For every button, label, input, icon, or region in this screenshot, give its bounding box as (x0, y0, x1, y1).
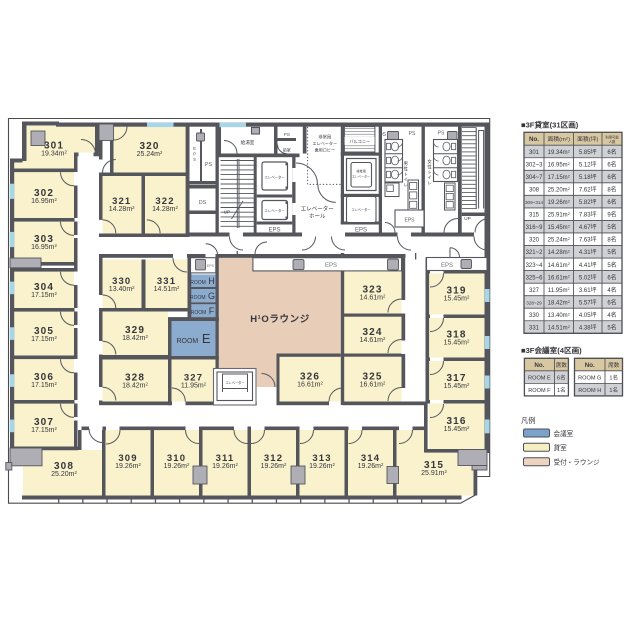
svg-text:25.20m2: 25.20m2 (548, 187, 570, 194)
svg-text:PS: PS (438, 131, 445, 137)
svg-text:7.83坪: 7.83坪 (579, 211, 597, 219)
svg-text:エレベーター: エレベーター (301, 205, 334, 213)
svg-text:5.18坪: 5.18坪 (579, 173, 597, 181)
svg-text:5.12坪: 5.12坪 (579, 160, 597, 168)
svg-text:16.61m2: 16.61m2 (297, 381, 323, 389)
svg-text:S: S (193, 157, 196, 162)
svg-text:4.05坪: 4.05坪 (579, 311, 597, 319)
svg-text:EPS: EPS (268, 228, 280, 234)
svg-text:14.61m2: 14.61m2 (548, 262, 570, 269)
svg-text:6名: 6名 (607, 273, 616, 281)
svg-text:16.95m2: 16.95m2 (548, 162, 570, 169)
svg-text:323~4: 323~4 (526, 263, 544, 269)
svg-text:EPS: EPS (325, 263, 337, 269)
svg-text:15.45m2: 15.45m2 (444, 425, 470, 433)
svg-text:308: 308 (529, 188, 540, 194)
svg-text:320: 320 (529, 238, 540, 244)
svg-text:3.61坪: 3.61坪 (579, 286, 597, 294)
svg-text:E: E (193, 146, 196, 151)
svg-text:エレベーター: エレベーター (264, 208, 285, 213)
svg-text:4名: 4名 (607, 311, 616, 319)
svg-text:ROOM F: ROOM F (528, 388, 551, 394)
svg-text:貸室: 貸室 (554, 443, 568, 452)
svg-text:1名: 1名 (609, 386, 618, 394)
svg-text:15.45m2: 15.45m2 (444, 339, 470, 347)
svg-text:非常用: 非常用 (318, 134, 331, 141)
svg-text:No.: No. (585, 362, 595, 369)
svg-text:UP: UP (224, 210, 230, 215)
svg-text:給湯室: 給湯室 (241, 139, 255, 146)
svg-text:ト: ト (404, 172, 408, 177)
svg-text:9名: 9名 (607, 211, 616, 219)
svg-text:PS: PS (409, 131, 416, 137)
svg-text:前室: 前室 (283, 147, 291, 153)
svg-text:ROOM G: ROOM G (578, 376, 601, 382)
svg-text:25.91m2: 25.91m2 (421, 469, 447, 477)
svg-text:321~2: 321~2 (526, 250, 544, 256)
svg-text:凡例: 凡例 (521, 416, 535, 425)
svg-text:エレベーター: エレベーター (313, 140, 338, 146)
svg-text:8名: 8名 (607, 236, 616, 244)
svg-text:EPS: EPS (207, 264, 215, 268)
svg-text:17.15m2: 17.15m2 (31, 335, 57, 343)
svg-text:5.85坪: 5.85坪 (579, 148, 597, 156)
svg-text:イ: イ (404, 177, 408, 182)
svg-text:14.28m2: 14.28m2 (152, 205, 178, 213)
svg-text:19.26m2: 19.26m2 (261, 462, 287, 470)
svg-text:16.95m2: 16.95m2 (31, 243, 57, 251)
svg-text:315: 315 (529, 213, 540, 219)
svg-text:ト: ト (427, 170, 431, 175)
svg-text:11.95m2: 11.95m2 (181, 382, 207, 390)
svg-text:19.26m2: 19.26m2 (164, 462, 190, 470)
svg-text:25.24m2: 25.24m2 (548, 237, 570, 244)
svg-text:19.26m2: 19.26m2 (115, 462, 141, 470)
svg-text:18.42m2: 18.42m2 (548, 300, 570, 307)
svg-text:利用可能: 利用可能 (605, 135, 619, 140)
svg-text:11.95m2: 11.95m2 (548, 287, 570, 294)
svg-text:No.: No. (529, 136, 539, 143)
svg-text:4.31坪: 4.31坪 (579, 248, 597, 256)
svg-text:5名: 5名 (607, 261, 616, 269)
svg-text:309~314: 309~314 (525, 200, 543, 205)
svg-text:16.95m2: 16.95m2 (31, 197, 57, 205)
svg-text:4.67坪: 4.67坪 (579, 223, 597, 231)
svg-text:エレベーター: エレベーター (225, 380, 244, 385)
svg-text:■3F貸室(31区画): ■3F貸室(31区画) (521, 119, 579, 129)
svg-text:PS: PS (205, 162, 213, 168)
svg-text:304~7: 304~7 (526, 175, 544, 181)
svg-text:15.45m2: 15.45m2 (444, 295, 470, 303)
svg-text:25.24m2: 25.24m2 (137, 150, 163, 158)
svg-text:327: 327 (529, 288, 540, 294)
svg-text:17.15m2: 17.15m2 (548, 174, 570, 181)
svg-text:レ: レ (427, 181, 431, 186)
svg-text:EPS: EPS (355, 228, 367, 234)
svg-text:6名: 6名 (607, 160, 616, 168)
svg-text:No.: No. (534, 362, 544, 369)
svg-text:5.57坪: 5.57坪 (579, 298, 597, 306)
svg-text:19.34m2: 19.34m2 (548, 149, 570, 156)
svg-text:面積(坪): 面積(坪) (577, 135, 598, 143)
svg-text:14.51m2: 14.51m2 (154, 285, 180, 293)
svg-text:EPS: EPS (404, 218, 415, 224)
svg-text:18.42m2: 18.42m2 (122, 382, 148, 390)
svg-text:5.82坪: 5.82坪 (579, 198, 597, 206)
svg-text:5名: 5名 (607, 323, 616, 331)
svg-text:325~6: 325~6 (526, 275, 544, 281)
svg-text:エレベーター: エレベーター (351, 207, 370, 212)
svg-text:DS: DS (379, 132, 387, 138)
svg-text:DS: DS (199, 200, 207, 206)
svg-text:19.26m2: 19.26m2 (548, 199, 570, 206)
svg-text:331: 331 (529, 325, 540, 331)
svg-text:非常用: 非常用 (356, 169, 366, 174)
svg-text:エレベーター: エレベーター (264, 174, 285, 179)
svg-text:4名: 4名 (607, 286, 616, 294)
svg-text:316~9: 316~9 (526, 225, 544, 231)
svg-text:13.40m2: 13.40m2 (109, 285, 135, 293)
svg-text:バルコニー: バルコニー (349, 139, 370, 144)
svg-text:302~3: 302~3 (526, 162, 544, 168)
svg-text:6名: 6名 (607, 298, 616, 306)
svg-text:19.34m2: 19.34m2 (41, 150, 67, 158)
svg-text:8名: 8名 (607, 186, 616, 194)
svg-text:25.91m2: 25.91m2 (548, 212, 570, 219)
svg-text:エレベーター: エレベーター (352, 174, 370, 179)
svg-text:17.15m2: 17.15m2 (31, 381, 57, 389)
svg-text:ROOM H: ROOM H (578, 388, 601, 394)
svg-text:1名: 1名 (609, 374, 618, 382)
svg-text:4.41坪: 4.41坪 (579, 261, 597, 269)
svg-text:6名: 6名 (557, 374, 566, 382)
svg-text:6名: 6名 (607, 148, 616, 156)
svg-text:5.02坪: 5.02坪 (579, 273, 597, 281)
svg-text:席数: 席数 (556, 361, 568, 369)
svg-text:17.15m2: 17.15m2 (31, 291, 57, 299)
svg-text:17.15m2: 17.15m2 (31, 426, 57, 434)
svg-text:14.28m2: 14.28m2 (548, 250, 570, 257)
svg-text:会議室: 会議室 (554, 429, 574, 438)
svg-text:ホール: ホール (309, 213, 326, 220)
svg-text:UP: UP (464, 216, 470, 221)
svg-text:イ: イ (427, 175, 431, 180)
svg-text:25.20m2: 25.20m2 (51, 470, 77, 478)
svg-text:4.38坪: 4.38坪 (579, 323, 597, 331)
svg-text:H¹Oラウンジ: H¹Oラウンジ (250, 314, 310, 325)
svg-text:6名: 6名 (607, 173, 616, 181)
svg-text:EPS: EPS (441, 263, 453, 269)
svg-text:レ: レ (404, 183, 408, 188)
svg-text:301: 301 (529, 150, 540, 156)
svg-text:P: P (193, 152, 196, 157)
svg-text:19.26m2: 19.26m2 (358, 462, 384, 470)
svg-text:19.26m2: 19.26m2 (212, 462, 238, 470)
svg-text:乗用ロビー: 乗用ロビー (315, 147, 335, 153)
svg-text:ROOM E: ROOM E (528, 376, 551, 382)
svg-text:16.61m2: 16.61m2 (360, 381, 386, 389)
svg-text:5名: 5名 (607, 223, 616, 231)
svg-text:7.63坪: 7.63坪 (579, 236, 597, 244)
svg-text:14.61m2: 14.61m2 (360, 336, 386, 344)
svg-text:席数: 席数 (608, 361, 620, 369)
svg-text:18.42m2: 18.42m2 (122, 334, 148, 342)
svg-text:13.40m2: 13.40m2 (548, 312, 570, 319)
svg-text:PS: PS (284, 132, 290, 138)
svg-text:15.45m2: 15.45m2 (548, 225, 570, 232)
svg-text:14.28m2: 14.28m2 (109, 205, 135, 213)
svg-text:14.51m2: 14.51m2 (548, 325, 570, 332)
svg-text:7.62坪: 7.62坪 (579, 186, 597, 194)
svg-text:14.61m2: 14.61m2 (360, 294, 386, 302)
svg-text:受付・ラウンジ: 受付・ラウンジ (554, 458, 601, 467)
svg-text:■3F会議室(4区画): ■3F会議室(4区画) (521, 345, 582, 355)
svg-text:人数: 人数 (609, 139, 616, 144)
svg-text:15.45m2: 15.45m2 (444, 382, 470, 390)
svg-text:6名: 6名 (607, 198, 616, 206)
svg-text:328~29: 328~29 (526, 300, 542, 305)
svg-text:5名: 5名 (607, 248, 616, 256)
svg-text:19.26m2: 19.26m2 (309, 462, 335, 470)
svg-text:330: 330 (529, 313, 540, 319)
svg-text:16.61m2: 16.61m2 (548, 275, 570, 282)
svg-text:1名: 1名 (557, 386, 566, 394)
